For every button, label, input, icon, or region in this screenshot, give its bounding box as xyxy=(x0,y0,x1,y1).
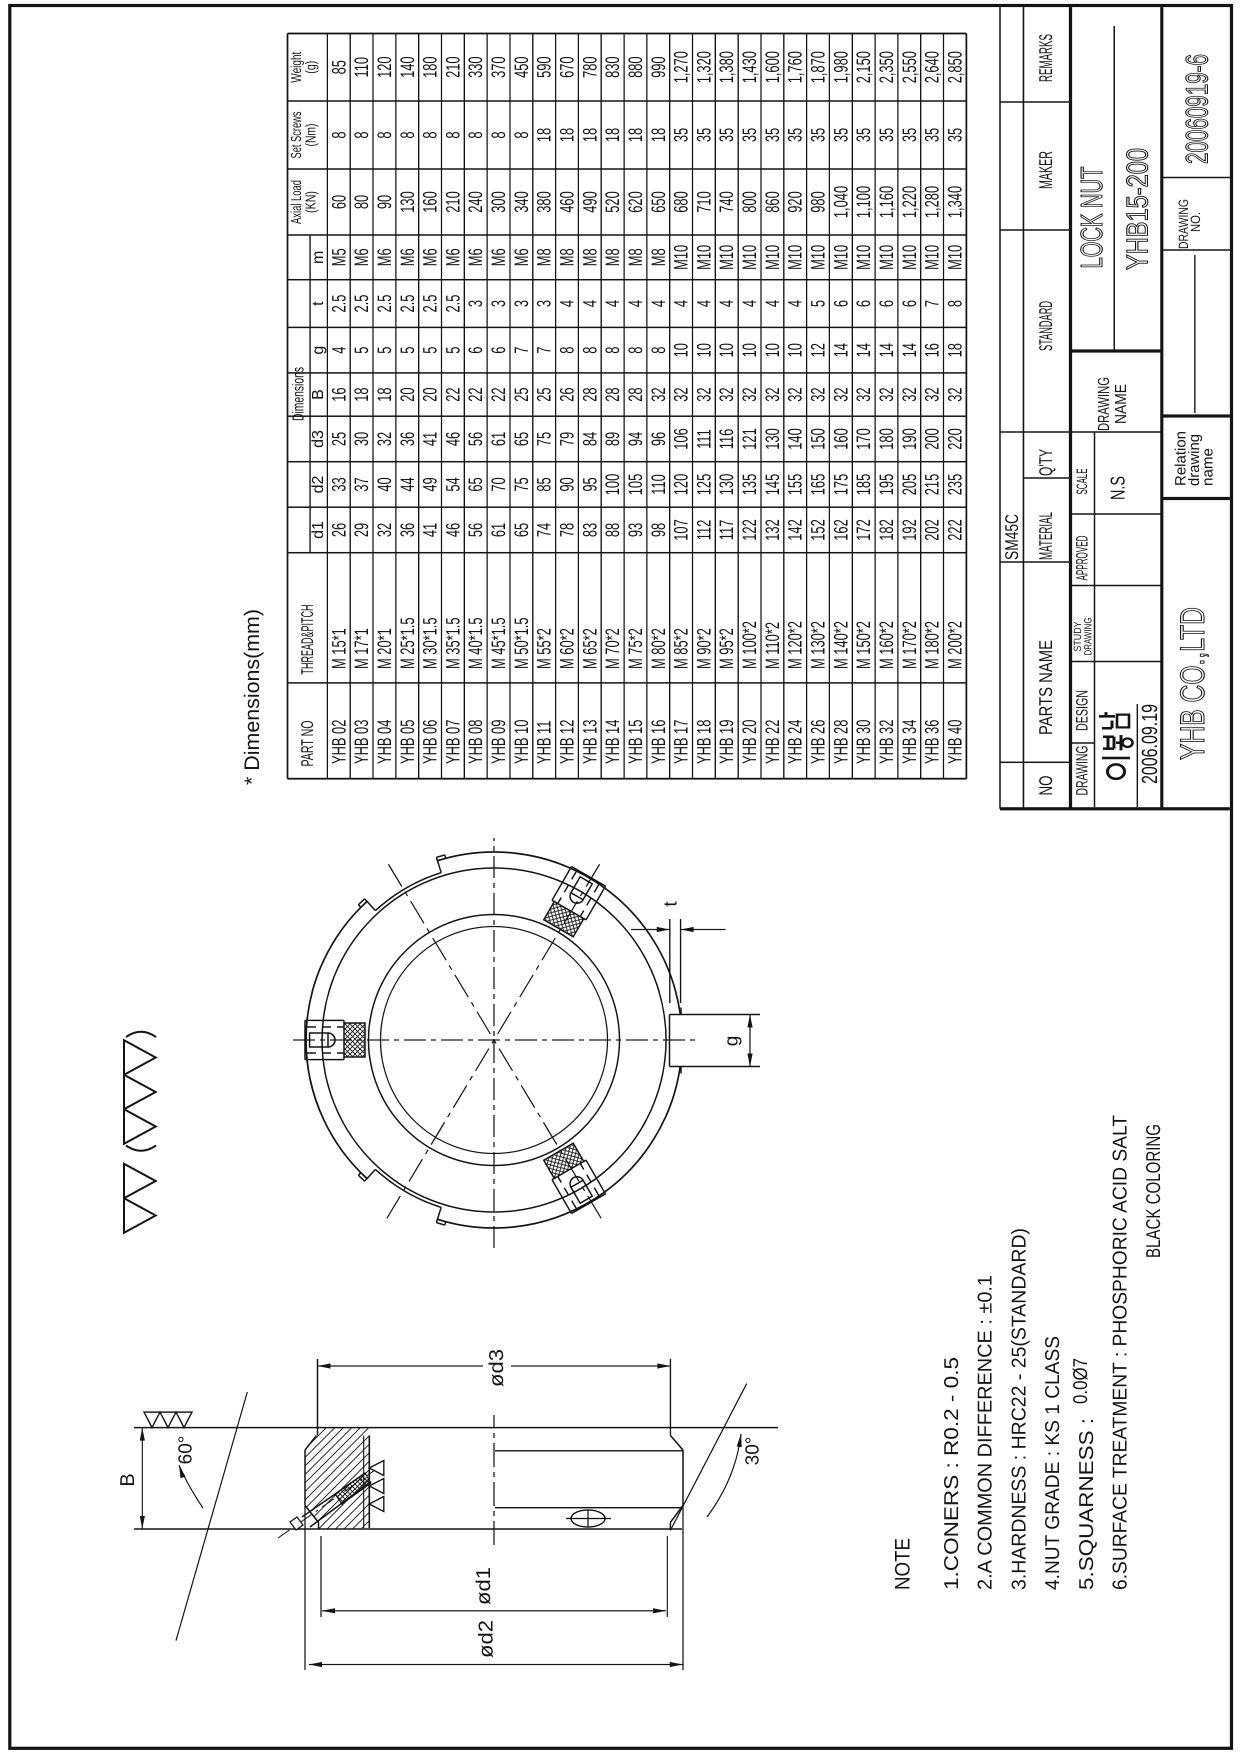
svg-text:M 90*2: M 90*2 xyxy=(693,628,715,669)
svg-text:B: B xyxy=(310,389,327,400)
svg-text:490: 490 xyxy=(579,191,601,213)
svg-text:5.SQUARNESS :: 5.SQUARNESS : xyxy=(1076,1418,1098,1590)
svg-text:90: 90 xyxy=(557,477,579,491)
svg-text:YHB 09: YHB 09 xyxy=(488,720,510,764)
svg-text:M 170*2: M 170*2 xyxy=(899,621,921,669)
svg-text:210: 210 xyxy=(442,191,464,213)
svg-text:d3: d3 xyxy=(310,430,327,448)
svg-text:M 15*1: M 15*1 xyxy=(328,628,350,669)
svg-text:830: 830 xyxy=(602,56,624,78)
svg-text:(g): (g) xyxy=(304,61,320,74)
svg-text:M 75*2: M 75*2 xyxy=(625,628,647,669)
svg-text:60°: 60° xyxy=(176,1436,197,1465)
svg-text:152: 152 xyxy=(808,519,830,540)
svg-text:190: 190 xyxy=(899,428,921,450)
svg-text:215: 215 xyxy=(922,474,944,496)
svg-text:M6: M6 xyxy=(511,248,533,266)
svg-text:35: 35 xyxy=(739,128,761,142)
svg-text:20: 20 xyxy=(420,387,442,401)
svg-text:Dimensions: Dimensions xyxy=(290,367,307,421)
svg-text:165: 165 xyxy=(808,474,830,496)
svg-text:32: 32 xyxy=(876,387,898,401)
svg-text:8: 8 xyxy=(511,131,533,138)
svg-text:95: 95 xyxy=(579,477,601,491)
svg-text:NAME: NAME xyxy=(1113,384,1130,424)
svg-text:M6: M6 xyxy=(351,248,373,266)
svg-text:140: 140 xyxy=(397,56,419,78)
svg-text:83: 83 xyxy=(579,523,601,537)
svg-text:8: 8 xyxy=(602,347,624,354)
svg-text:MATERIAL: MATERIAL xyxy=(1035,512,1056,560)
svg-text:6.SURFACE TREATMENT : PHOSPHOR: 6.SURFACE TREATMENT : PHOSPHORIC ACID SA… xyxy=(1110,1115,1132,1590)
svg-text:d1: d1 xyxy=(310,521,327,539)
svg-text:205: 205 xyxy=(899,474,921,496)
svg-text:8: 8 xyxy=(944,300,966,307)
svg-text:4: 4 xyxy=(648,300,670,307)
svg-text:4: 4 xyxy=(328,347,350,354)
svg-text:32: 32 xyxy=(922,387,944,401)
svg-text:35: 35 xyxy=(785,128,807,142)
svg-text:(KN): (KN) xyxy=(304,191,320,213)
svg-text:YHB 05: YHB 05 xyxy=(397,720,419,764)
svg-text:YHB 08: YHB 08 xyxy=(465,720,487,764)
svg-text:14: 14 xyxy=(853,343,875,357)
svg-text:M 80*2: M 80*2 xyxy=(648,628,670,669)
svg-text:M6: M6 xyxy=(465,248,487,266)
svg-text:YHB 06: YHB 06 xyxy=(420,720,442,764)
svg-text:10: 10 xyxy=(716,343,738,357)
svg-text:61: 61 xyxy=(488,523,510,537)
svg-text:SCALE: SCALE xyxy=(1074,469,1091,495)
svg-text:175: 175 xyxy=(830,474,852,496)
svg-text:M10: M10 xyxy=(830,245,852,270)
svg-text:120: 120 xyxy=(671,474,693,496)
svg-text:YHB 11: YHB 11 xyxy=(534,721,556,764)
svg-text:2.A COMMON DIFFERENCE : ±0.1: 2.A COMMON DIFFERENCE : ±0.1 xyxy=(975,1275,997,1590)
svg-text:2.5: 2.5 xyxy=(351,295,373,313)
svg-text:YHB 32: YHB 32 xyxy=(876,720,898,764)
svg-text:10: 10 xyxy=(739,343,761,357)
svg-text:22: 22 xyxy=(465,387,487,401)
svg-text:6: 6 xyxy=(830,300,852,307)
svg-text:7: 7 xyxy=(511,347,533,354)
svg-text:YHB 04: YHB 04 xyxy=(374,720,396,764)
svg-text:3: 3 xyxy=(534,300,556,307)
svg-text:M 20*1: M 20*1 xyxy=(374,628,396,669)
svg-text:30: 30 xyxy=(351,432,373,446)
svg-text:18: 18 xyxy=(374,387,396,401)
svg-text:74: 74 xyxy=(534,523,556,537)
svg-text:N.S: N.S xyxy=(1108,476,1130,500)
svg-text:M 17*1: M 17*1 xyxy=(351,628,373,669)
svg-text:202: 202 xyxy=(922,519,944,540)
svg-text:5: 5 xyxy=(808,300,830,307)
svg-text:35: 35 xyxy=(876,128,898,142)
svg-text:YHB15-200: YHB15-200 xyxy=(1122,148,1155,270)
svg-text:1,100: 1,100 xyxy=(853,186,875,218)
svg-text:M10: M10 xyxy=(671,245,693,270)
svg-text:370: 370 xyxy=(488,56,510,78)
svg-text:180: 180 xyxy=(876,428,898,450)
svg-text:98: 98 xyxy=(648,523,670,537)
svg-text:90: 90 xyxy=(374,195,396,209)
svg-text:14: 14 xyxy=(830,343,852,357)
svg-text:6: 6 xyxy=(853,300,875,307)
svg-text:54: 54 xyxy=(442,477,464,491)
svg-text:160: 160 xyxy=(420,191,442,213)
svg-text:5: 5 xyxy=(374,347,396,354)
svg-text:2.5: 2.5 xyxy=(374,295,396,313)
svg-text:32: 32 xyxy=(853,387,875,401)
svg-text:8: 8 xyxy=(488,131,510,138)
svg-text:990: 990 xyxy=(648,56,670,78)
svg-text:60: 60 xyxy=(328,195,350,209)
svg-text:18: 18 xyxy=(557,128,579,142)
svg-text:120: 120 xyxy=(374,56,396,78)
svg-text:4.NUT GRADE : KS 1 CLASS: 4.NUT GRADE : KS 1 CLASS xyxy=(1042,1336,1064,1590)
svg-text:M6: M6 xyxy=(397,248,419,266)
svg-text:195: 195 xyxy=(876,474,898,496)
svg-text:1.CONERS : R0.2 - 0.5: 1.CONERS : R0.2 - 0.5 xyxy=(941,1357,963,1590)
svg-text:32: 32 xyxy=(693,387,715,401)
svg-text:182: 182 xyxy=(876,519,898,540)
svg-text:YHB 14: YHB 14 xyxy=(602,720,624,764)
svg-text:YHB 34: YHB 34 xyxy=(899,720,921,764)
svg-text:110: 110 xyxy=(351,57,373,78)
svg-text:18: 18 xyxy=(602,128,624,142)
svg-text:DRAWING: DRAWING xyxy=(1096,377,1113,431)
svg-text:89: 89 xyxy=(602,432,624,446)
svg-text:49: 49 xyxy=(420,477,442,491)
svg-text:75: 75 xyxy=(511,477,533,491)
svg-text:4: 4 xyxy=(716,300,738,307)
svg-text:DRAWING: DRAWING xyxy=(1083,618,1095,656)
svg-text:32: 32 xyxy=(671,387,693,401)
svg-text:M10: M10 xyxy=(739,245,761,270)
svg-text:121: 121 xyxy=(739,428,761,449)
svg-text:670: 670 xyxy=(557,56,579,78)
svg-text:8: 8 xyxy=(328,131,350,138)
svg-text:7: 7 xyxy=(534,347,556,354)
svg-text:32: 32 xyxy=(944,387,966,401)
svg-text:1,340: 1,340 xyxy=(944,186,966,218)
svg-text:M10: M10 xyxy=(808,245,830,270)
svg-text:860: 860 xyxy=(762,191,784,213)
svg-text:28: 28 xyxy=(579,387,601,401)
svg-text:DESIGN: DESIGN xyxy=(1074,690,1092,731)
svg-text:200: 200 xyxy=(922,428,944,450)
svg-text:2.5: 2.5 xyxy=(420,295,442,313)
svg-text:880: 880 xyxy=(625,56,647,78)
svg-text:M10: M10 xyxy=(762,245,784,270)
svg-text:M10: M10 xyxy=(944,245,966,270)
svg-text:M8: M8 xyxy=(534,248,556,266)
svg-text:YHB 24: YHB 24 xyxy=(785,720,807,764)
svg-text:18: 18 xyxy=(579,128,601,142)
svg-text:170: 170 xyxy=(853,428,875,450)
svg-text:6: 6 xyxy=(876,300,898,307)
svg-text:name: name xyxy=(1200,448,1217,486)
svg-text:M 45*1.5: M 45*1.5 xyxy=(488,617,510,669)
svg-text:56: 56 xyxy=(465,432,487,446)
svg-text:65: 65 xyxy=(511,432,533,446)
svg-text:8: 8 xyxy=(579,347,601,354)
svg-text:t: t xyxy=(661,901,682,907)
svg-text:32: 32 xyxy=(899,387,921,401)
svg-text:70: 70 xyxy=(488,477,510,491)
svg-text:32: 32 xyxy=(374,523,396,537)
svg-text:M6: M6 xyxy=(420,248,442,266)
svg-text:YHB 17: YHB 17 xyxy=(671,720,693,764)
svg-text:M 55*2: M 55*2 xyxy=(534,628,556,669)
svg-text:M8: M8 xyxy=(602,248,624,266)
svg-text:35: 35 xyxy=(693,128,715,142)
svg-text:M 30*1.5: M 30*1.5 xyxy=(420,617,442,669)
svg-text:740: 740 xyxy=(716,191,738,213)
svg-text:162: 162 xyxy=(830,519,852,540)
svg-text:3: 3 xyxy=(465,300,487,307)
svg-text:340: 340 xyxy=(511,191,533,213)
svg-text:3.HARDNESS : HRC22 - 25(STANDA: 3.HARDNESS : HRC22 - 25(STANDARD) xyxy=(1008,1228,1030,1590)
svg-text:LOCK NUT: LOCK NUT xyxy=(1075,167,1109,269)
svg-text:1,280: 1,280 xyxy=(922,186,944,218)
svg-text:YHB 26: YHB 26 xyxy=(808,720,830,764)
svg-text:35: 35 xyxy=(671,128,693,142)
svg-text:1,320: 1,320 xyxy=(693,51,715,83)
svg-text:7: 7 xyxy=(922,300,944,307)
svg-text:450: 450 xyxy=(511,56,533,78)
svg-text:32: 32 xyxy=(808,387,830,401)
svg-text:1,040: 1,040 xyxy=(830,186,852,218)
svg-text:YHB 07: YHB 07 xyxy=(442,720,464,764)
svg-text:125: 125 xyxy=(693,474,715,496)
svg-text:STANDARD: STANDARD xyxy=(1035,301,1056,351)
svg-text:28: 28 xyxy=(625,387,647,401)
svg-text:YHB 22: YHB 22 xyxy=(762,720,784,764)
svg-text:M10: M10 xyxy=(693,245,715,270)
svg-text:28: 28 xyxy=(602,387,624,401)
svg-text:M 200*2: M 200*2 xyxy=(944,621,966,669)
svg-text:YHB 15: YHB 15 xyxy=(625,720,647,764)
svg-text:37: 37 xyxy=(351,477,373,491)
svg-text:YHB 19: YHB 19 xyxy=(716,720,738,764)
svg-text:240: 240 xyxy=(465,191,487,213)
svg-text:25: 25 xyxy=(511,387,533,401)
svg-text:YHB 16: YHB 16 xyxy=(648,720,670,764)
svg-text:100: 100 xyxy=(602,474,624,496)
svg-text:YHB 10: YHB 10 xyxy=(511,720,533,764)
svg-text:2.5: 2.5 xyxy=(442,295,464,313)
svg-text:20: 20 xyxy=(397,387,419,401)
svg-text:2.5: 2.5 xyxy=(397,295,419,313)
svg-text:M 110*2: M 110*2 xyxy=(762,622,784,669)
svg-text:M 35*1.5: M 35*1.5 xyxy=(442,617,464,669)
svg-text:8: 8 xyxy=(648,347,670,354)
svg-text:130: 130 xyxy=(762,428,784,450)
svg-text:88: 88 xyxy=(602,523,624,537)
svg-text:122: 122 xyxy=(739,519,761,540)
svg-text:M8: M8 xyxy=(579,248,601,266)
svg-text:4: 4 xyxy=(625,300,647,307)
svg-text:32: 32 xyxy=(648,387,670,401)
svg-text:35: 35 xyxy=(899,128,921,142)
svg-text:35: 35 xyxy=(808,128,830,142)
svg-text:78: 78 xyxy=(557,523,579,537)
svg-text:M6: M6 xyxy=(488,248,510,266)
svg-text:YHB 20: YHB 20 xyxy=(739,720,761,764)
svg-text:84: 84 xyxy=(579,432,601,446)
svg-text:M 70*2: M 70*2 xyxy=(602,628,624,669)
svg-text:590: 590 xyxy=(534,56,556,78)
svg-text:33: 33 xyxy=(328,477,350,491)
svg-text:8: 8 xyxy=(397,131,419,138)
svg-text:32: 32 xyxy=(762,387,784,401)
svg-text:41: 41 xyxy=(420,432,442,446)
svg-text:32: 32 xyxy=(739,387,761,401)
svg-text:10: 10 xyxy=(762,343,784,357)
svg-text:1,430: 1,430 xyxy=(739,51,761,83)
svg-text:94: 94 xyxy=(625,432,647,446)
svg-text:980: 980 xyxy=(808,191,830,213)
svg-text:18: 18 xyxy=(944,343,966,357)
svg-text:8: 8 xyxy=(465,131,487,138)
svg-text:222: 222 xyxy=(944,519,966,540)
svg-text:4: 4 xyxy=(671,300,693,307)
svg-text:d2: d2 xyxy=(310,476,327,494)
svg-text:3: 3 xyxy=(511,300,533,307)
svg-text:2,550: 2,550 xyxy=(899,51,921,83)
svg-text:ød2: ød2 xyxy=(476,1620,498,1658)
svg-text:26: 26 xyxy=(557,387,579,401)
svg-text:4: 4 xyxy=(693,300,715,307)
svg-text:YHB 03: YHB 03 xyxy=(351,720,373,764)
svg-text:4: 4 xyxy=(602,300,624,307)
svg-text:APPROVED: APPROVED xyxy=(1074,535,1092,580)
svg-text:16: 16 xyxy=(328,387,350,401)
svg-text:800: 800 xyxy=(739,191,761,213)
svg-text:M5: M5 xyxy=(328,248,350,266)
svg-text:93: 93 xyxy=(625,523,647,537)
svg-text:22: 22 xyxy=(488,387,510,401)
svg-text:NO.: NO. xyxy=(1188,212,1203,232)
svg-text:14: 14 xyxy=(899,343,921,357)
svg-text:300: 300 xyxy=(488,191,510,213)
svg-text:2.5: 2.5 xyxy=(328,295,350,313)
svg-text:20060919-6: 20060919-6 xyxy=(1180,54,1215,164)
svg-text:80: 80 xyxy=(351,195,373,209)
svg-text:116: 116 xyxy=(716,429,738,450)
svg-text:2,850: 2,850 xyxy=(944,51,966,83)
svg-text:460: 460 xyxy=(557,191,579,213)
svg-text:THREAD&PITCH: THREAD&PITCH xyxy=(298,605,317,675)
svg-text:M8: M8 xyxy=(557,248,579,266)
svg-text:10: 10 xyxy=(693,343,715,357)
svg-text:36: 36 xyxy=(397,523,419,537)
svg-text:650: 650 xyxy=(648,191,670,213)
svg-text:t: t xyxy=(310,301,327,306)
svg-text:M8: M8 xyxy=(625,248,647,266)
svg-text:25: 25 xyxy=(534,387,556,401)
svg-text:46: 46 xyxy=(442,432,464,446)
svg-text:35: 35 xyxy=(922,128,944,142)
svg-text:M6: M6 xyxy=(442,248,464,266)
svg-text:M 50*1.5: M 50*1.5 xyxy=(511,617,533,669)
svg-text:PART NO: PART NO xyxy=(298,721,317,767)
svg-text:35: 35 xyxy=(830,128,852,142)
svg-text:YHB 30: YHB 30 xyxy=(853,720,875,764)
svg-text:75: 75 xyxy=(534,432,556,446)
svg-text:106: 106 xyxy=(671,428,693,449)
svg-text:145: 145 xyxy=(762,474,784,496)
svg-text:780: 780 xyxy=(579,56,601,78)
svg-text:6: 6 xyxy=(488,347,510,354)
svg-text:142: 142 xyxy=(785,519,807,540)
svg-text:YHB 18: YHB 18 xyxy=(693,720,715,764)
svg-text:180: 180 xyxy=(420,56,442,78)
svg-text:NO: NO xyxy=(1035,776,1056,796)
svg-text:2006.09.19: 2006.09.19 xyxy=(1137,704,1162,784)
svg-text:32: 32 xyxy=(374,432,396,446)
svg-text:M 40*1.5: M 40*1.5 xyxy=(465,617,487,669)
svg-text:18: 18 xyxy=(351,387,373,401)
svg-text:4: 4 xyxy=(579,300,601,307)
svg-text:M 60*2: M 60*2 xyxy=(557,628,579,669)
svg-text:4: 4 xyxy=(762,300,784,307)
svg-text:1,870: 1,870 xyxy=(808,51,830,83)
svg-text:M10: M10 xyxy=(876,245,898,270)
svg-text:8: 8 xyxy=(351,131,373,138)
svg-text:4: 4 xyxy=(785,300,807,307)
svg-text:65: 65 xyxy=(511,523,533,537)
svg-text:YHB 12: YHB 12 xyxy=(557,720,579,764)
svg-text:M 130*2: M 130*2 xyxy=(808,621,830,669)
svg-text:111: 111 xyxy=(693,429,715,449)
svg-text:1,980: 1,980 xyxy=(830,51,852,83)
svg-text:0.0Ø7: 0.0Ø7 xyxy=(1070,1358,1092,1404)
svg-text:10: 10 xyxy=(785,343,807,357)
svg-text:6: 6 xyxy=(899,300,921,307)
svg-text:330: 330 xyxy=(465,56,487,78)
svg-text:235: 235 xyxy=(944,474,966,496)
svg-text:40: 40 xyxy=(374,477,396,491)
svg-text:6: 6 xyxy=(465,347,487,354)
svg-text:NOTE: NOTE xyxy=(892,1538,915,1590)
svg-text:35: 35 xyxy=(762,128,784,142)
svg-text:5: 5 xyxy=(420,347,442,354)
svg-text:YHB 13: YHB 13 xyxy=(579,720,601,764)
svg-text:1,380: 1,380 xyxy=(716,51,738,83)
svg-text:YHB 28: YHB 28 xyxy=(830,720,852,764)
svg-text:96: 96 xyxy=(648,432,670,446)
svg-text:150: 150 xyxy=(808,428,830,450)
svg-text:130: 130 xyxy=(397,191,419,213)
svg-text:2,640: 2,640 xyxy=(922,51,944,83)
svg-text:210: 210 xyxy=(442,56,464,78)
svg-text:710: 710 xyxy=(693,191,715,213)
svg-text:1,760: 1,760 xyxy=(785,51,807,83)
svg-text:* Dimensions(mm): * Dimensions(mm) xyxy=(241,609,264,785)
svg-text:1,600: 1,600 xyxy=(762,51,784,83)
svg-text:44: 44 xyxy=(397,477,419,491)
svg-text:132: 132 xyxy=(762,519,784,540)
svg-text:4: 4 xyxy=(557,300,579,307)
svg-text:110: 110 xyxy=(648,474,670,495)
svg-text:8: 8 xyxy=(420,131,442,138)
svg-text:M6: M6 xyxy=(374,248,396,266)
svg-text:18: 18 xyxy=(534,128,556,142)
svg-text:5: 5 xyxy=(442,347,464,354)
svg-text:YHB CO.,LTD: YHB CO.,LTD xyxy=(1174,607,1212,760)
